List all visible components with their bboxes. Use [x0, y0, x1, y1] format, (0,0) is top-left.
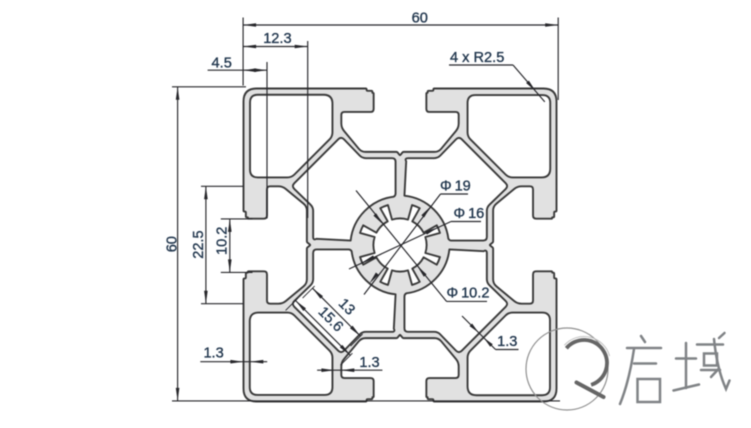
svg-text:1.3: 1.3	[203, 346, 223, 362]
svg-text:4.5: 4.5	[212, 55, 232, 71]
svg-text:Φ 19: Φ 19	[440, 179, 471, 195]
svg-text:12.3: 12.3	[263, 31, 291, 47]
svg-text:4 x R2.5: 4 x R2.5	[450, 50, 504, 66]
svg-text:1.3: 1.3	[497, 334, 517, 350]
svg-text:1.3: 1.3	[359, 355, 379, 371]
svg-text:Φ 10.2: Φ 10.2	[447, 285, 490, 301]
svg-text:10.2: 10.2	[215, 227, 231, 255]
svg-text:22.5: 22.5	[191, 230, 207, 258]
svg-text:60: 60	[412, 11, 428, 27]
svg-text:60: 60	[164, 236, 180, 252]
svg-text:Φ 16: Φ 16	[454, 206, 485, 222]
